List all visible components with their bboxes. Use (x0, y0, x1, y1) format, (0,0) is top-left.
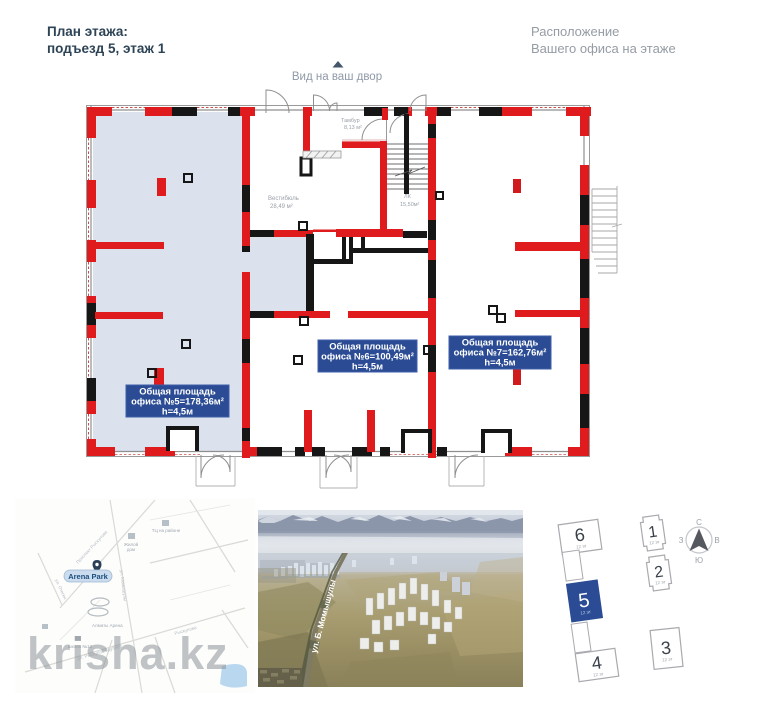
svg-text:h=4,5м: h=4,5м (352, 361, 383, 372)
svg-text:подъезд 5, этаж 1: подъезд 5, этаж 1 (47, 41, 166, 56)
svg-text:Тамбур: Тамбур (341, 118, 360, 124)
svg-text:С: С (696, 518, 702, 527)
svg-text:h=4,5м: h=4,5м (162, 406, 193, 417)
svg-text:krisha.kz: krisha.kz (27, 628, 229, 679)
svg-text:3: 3 (660, 638, 672, 659)
svg-text:ЛК: ЛК (404, 194, 412, 200)
svg-text:Ю: Ю (695, 556, 703, 565)
svg-text:Arena Park: Arena Park (68, 572, 108, 581)
svg-text:дом: дом (127, 547, 135, 552)
svg-text:План этажа:: План этажа: (47, 24, 128, 39)
svg-text:В: В (714, 536, 719, 545)
svg-text:28,49 м²: 28,49 м² (270, 204, 293, 210)
svg-text:15,50м²: 15,50м² (400, 202, 420, 208)
svg-text:ТЦ на районе: ТЦ на районе (152, 527, 181, 533)
svg-text:З: З (679, 536, 684, 545)
svg-text:Вестибюль: Вестибюль (268, 196, 299, 202)
svg-text:Расположение: Расположение (531, 24, 619, 39)
svg-text:h=4,5м: h=4,5м (484, 357, 515, 368)
svg-text:8,13 м²: 8,13 м² (344, 125, 362, 131)
svg-text:Вашего офиса на этаже: Вашего офиса на этаже (531, 41, 676, 56)
svg-text:Вид на ваш двор: Вид на ваш двор (292, 71, 382, 83)
